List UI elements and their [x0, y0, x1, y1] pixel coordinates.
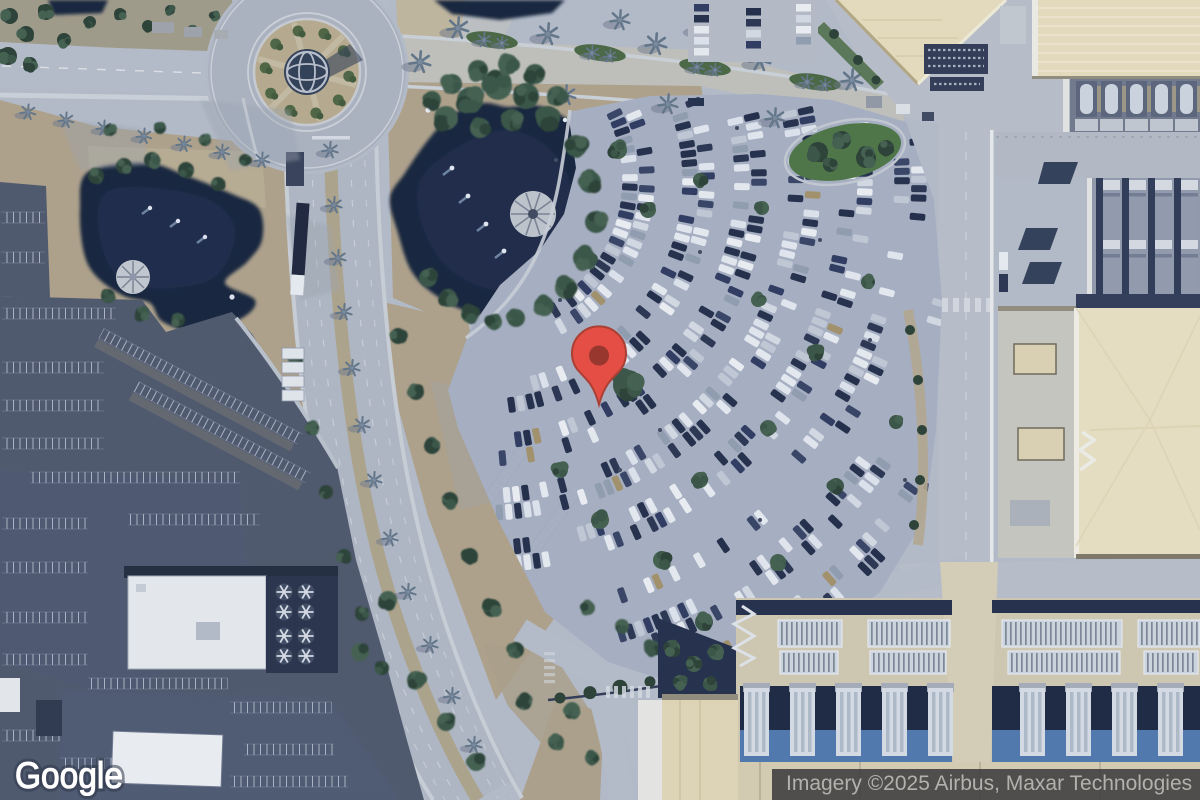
- svg-text:Imagery ©2025 Airbus, Maxar Te: Imagery ©2025 Airbus, Maxar Technologies: [786, 772, 1192, 795]
- svg-text:Google: Google: [15, 755, 123, 796]
